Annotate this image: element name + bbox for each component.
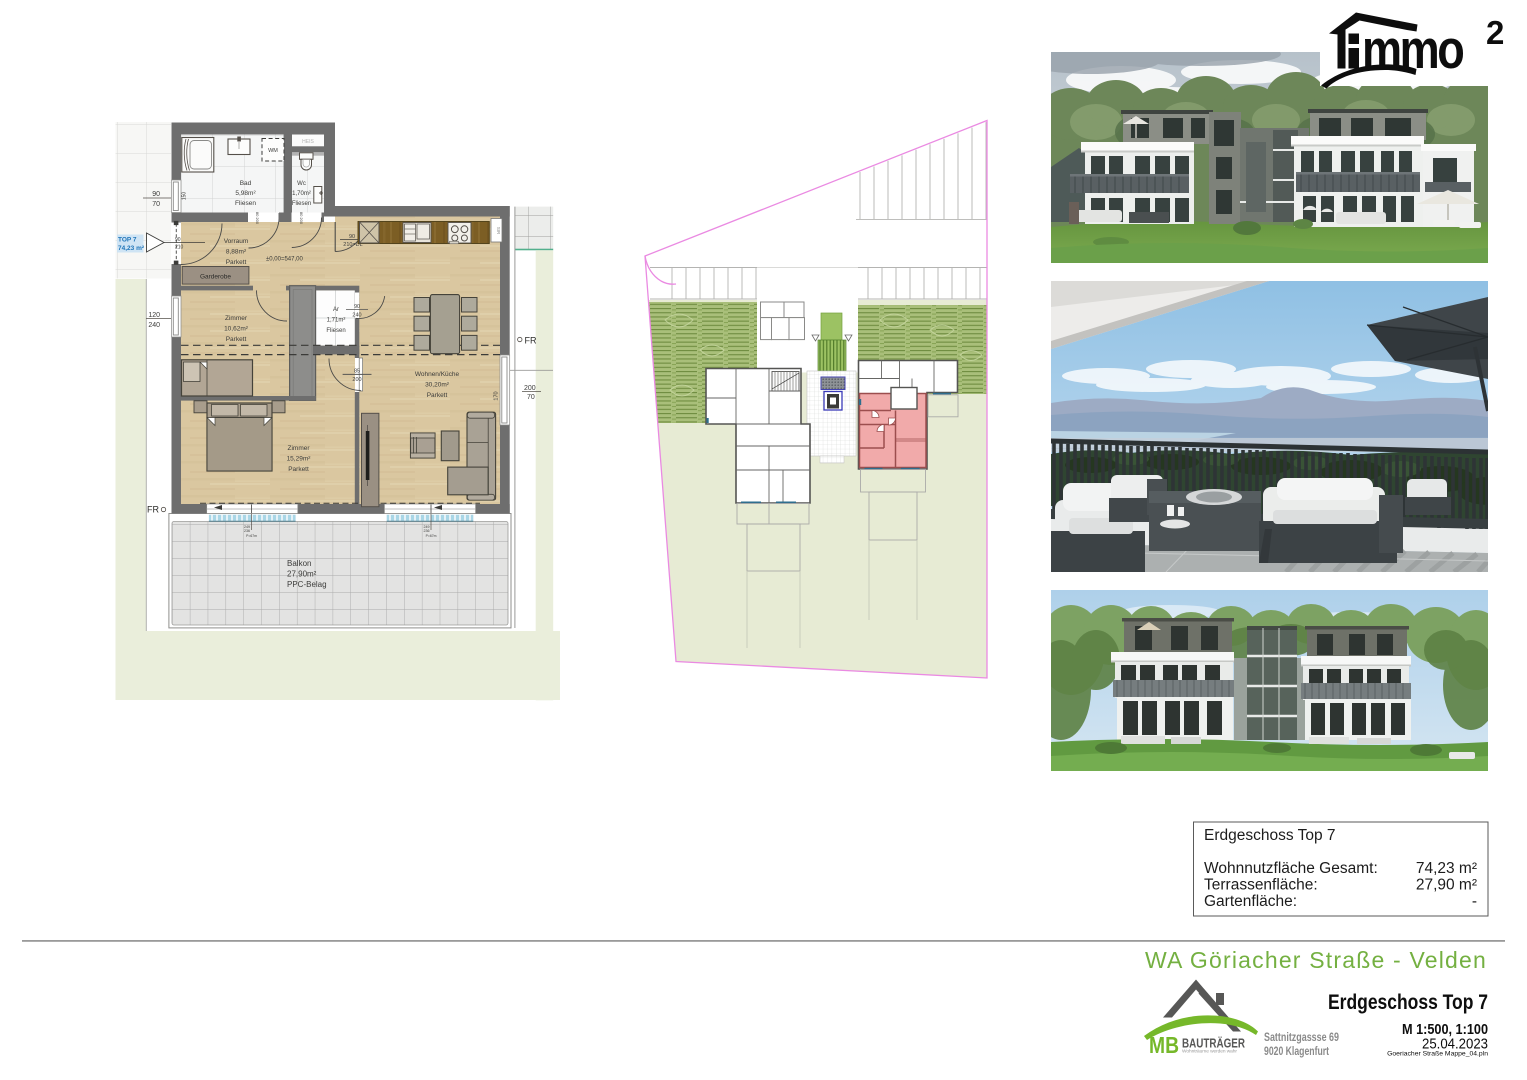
svg-text:90: 90 [354,304,360,310]
svg-text:Parkett: Parkett [226,336,247,343]
svg-text:WM: WM [268,148,278,154]
svg-text:Parkett: Parkett [226,259,247,266]
svg-text:PPC-Belag: PPC-Belag [287,580,327,589]
svg-text:Fliesen: Fliesen [292,201,311,207]
svg-text:236: 236 [424,529,430,533]
svg-text:70: 70 [152,201,160,208]
svg-text:Gartenfläche:: Gartenfläche: [1204,893,1297,910]
svg-text:Fliesen: Fliesen [235,200,256,207]
svg-text:8,88m²: 8,88m² [226,249,247,256]
svg-text:150: 150 [182,192,188,201]
svg-text:15,29m²: 15,29m² [287,456,312,463]
svg-text:MB: MB [1149,1032,1179,1058]
svg-text:WA Göriacher Straße - Velden: WA Göriacher Straße - Velden [1145,947,1487,973]
svg-text:1,70m²: 1,70m² [292,191,311,197]
svg-text:Goeriacher Straße Mappe_04.pln: Goeriacher Straße Mappe_04.pln [1387,1051,1488,1058]
svg-text:27,90m²: 27,90m² [287,570,317,579]
svg-text:70: 70 [527,394,535,401]
svg-text:1,71m²: 1,71m² [327,318,346,324]
svg-text:240: 240 [148,322,160,329]
svg-text:120: 120 [148,312,160,319]
svg-text:±0,00=547,00: ±0,00=547,00 [266,257,303,263]
svg-text:P=67m: P=67m [246,534,257,538]
svg-text:Fliesen: Fliesen [326,328,345,334]
svg-text:Bad: Bad [240,180,252,187]
svg-text:SIR: SIR [496,227,501,235]
svg-text:P=67m: P=67m [426,534,437,538]
svg-text:90: 90 [175,237,181,243]
svg-text:HEIS: HEIS [302,139,314,145]
svg-text:27,90 m²: 27,90 m² [1416,877,1477,894]
svg-text:BAUTRÄGER: BAUTRÄGER [1182,1036,1245,1051]
svg-text:FR: FR [147,505,159,515]
svg-text:FR: FR [525,336,537,346]
svg-text:Parkett: Parkett [288,466,309,473]
svg-text:Wohnen/Küche: Wohnen/Küche [415,371,460,378]
svg-text:Wc: Wc [297,181,306,187]
svg-text:90: 90 [152,191,160,198]
svg-text:Erdgeschoss Top 7: Erdgeschoss Top 7 [1204,827,1336,844]
svg-text:200: 200 [524,385,536,392]
svg-text:170: 170 [494,391,500,400]
svg-text:240: 240 [352,313,361,319]
svg-text:74,23 m²: 74,23 m² [1416,860,1477,877]
svg-text:Vorraum: Vorraum [224,238,249,245]
svg-text:5,98m²: 5,98m² [235,190,256,197]
svg-text:236: 236 [244,529,250,533]
svg-text:Balkon: Balkon [287,559,311,568]
svg-text:80 200: 80 200 [255,212,260,225]
svg-text:30,20m²: 30,20m² [425,382,450,389]
svg-text:Ar: Ar [333,307,339,313]
svg-text:Sattnitzgassse 69: Sattnitzgassse 69 [1264,1032,1339,1044]
svg-text:Parkett: Parkett [427,392,448,399]
svg-text:Zimmer: Zimmer [225,315,248,322]
svg-text:Zimmer: Zimmer [287,445,310,452]
svg-text:90: 90 [349,234,355,240]
svg-text:9020 Klagenfurt: 9020 Klagenfurt [1264,1046,1329,1058]
svg-text:Wohnnutzfläche Gesamt:: Wohnnutzfläche Gesamt: [1204,860,1378,877]
svg-text:85: 85 [354,369,360,375]
svg-text:10,62m²: 10,62m² [224,326,249,333]
svg-text:TOP 7: TOP 7 [118,237,137,244]
svg-text:Wohnträume werden wahr: Wohnträume werden wahr [1182,1049,1237,1055]
svg-text:200: 200 [352,377,361,383]
svg-text:-: - [1472,893,1477,910]
svg-text:80 200: 80 200 [299,212,304,225]
svg-text:74,23 m²: 74,23 m² [118,245,145,252]
svg-text:Terrassenfläche:: Terrassenfläche: [1204,877,1318,894]
svg-text:210: 210 [175,245,184,251]
svg-text:Garderobe: Garderobe [200,274,231,281]
svg-text:2: 2 [1486,14,1504,51]
svg-text:Erdgeschoss Top 7: Erdgeschoss Top 7 [1328,991,1488,1014]
